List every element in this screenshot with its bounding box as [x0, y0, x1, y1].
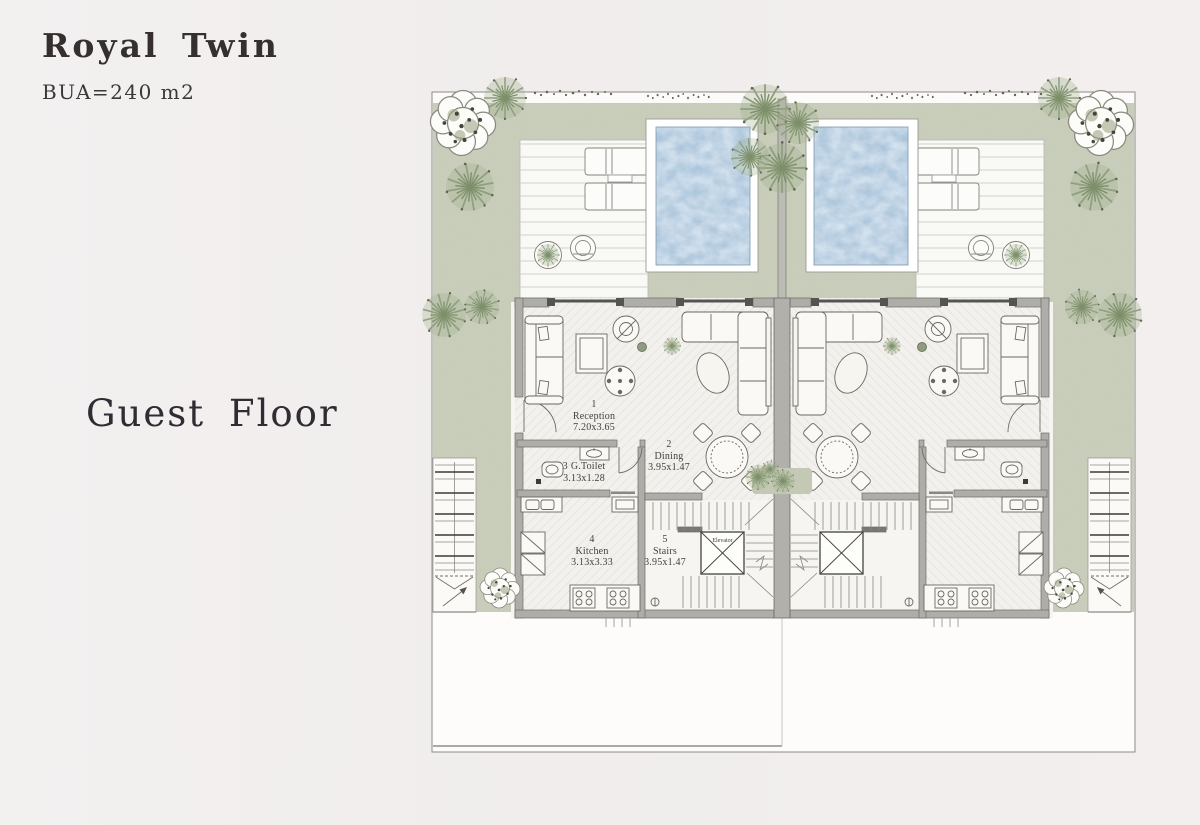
external-stair-left: [433, 458, 476, 612]
floor-label: Guest Floor: [86, 392, 339, 435]
front-yard: [433, 612, 1134, 751]
room-dims: 7.20x3.65: [573, 422, 615, 434]
room-number: 4: [571, 534, 613, 546]
villa-unit-left: [511, 119, 774, 627]
room-dims: 3.95x1.47: [644, 557, 686, 569]
external-stair-right: [1088, 458, 1131, 612]
room-label-gtoilet: 3G.Toilet 3.13x1.28: [563, 461, 606, 484]
room-number: 1: [573, 399, 615, 411]
room-dims: 3.13x1.28: [563, 473, 606, 485]
room-dims: 3.13x3.33: [571, 557, 613, 569]
room-name: Dining: [648, 451, 690, 463]
room-label-stairs: 5 Stairs 3.95x1.47: [644, 534, 686, 569]
page-subtitle: BUA=240 m2: [42, 80, 195, 104]
room-label-dining: 2 Dining 3.95x1.47: [648, 439, 690, 474]
room-name: Kitchen: [571, 546, 613, 558]
room-name: Stairs: [644, 546, 686, 558]
room-label-kitchen: 4 Kitchen 3.13x3.33: [571, 534, 613, 569]
page: Royal Twin BUA=240 m2 Guest Floor: [0, 0, 1200, 825]
villa-unit-right: [790, 119, 1053, 627]
room-number: 5: [644, 534, 686, 546]
room-dims: 3.95x1.47: [648, 462, 690, 474]
room-name: Reception: [573, 411, 615, 423]
elevator-label: Elevator: [712, 538, 732, 544]
page-title: Royal Twin: [42, 26, 280, 65]
floor-plan: Elevator: [420, 65, 1155, 765]
room-number: 3: [563, 461, 568, 472]
room-label-reception: 1 Reception 7.20x3.65: [573, 399, 615, 434]
room-name: G.Toilet: [571, 461, 606, 472]
room-number: 2: [648, 439, 690, 451]
